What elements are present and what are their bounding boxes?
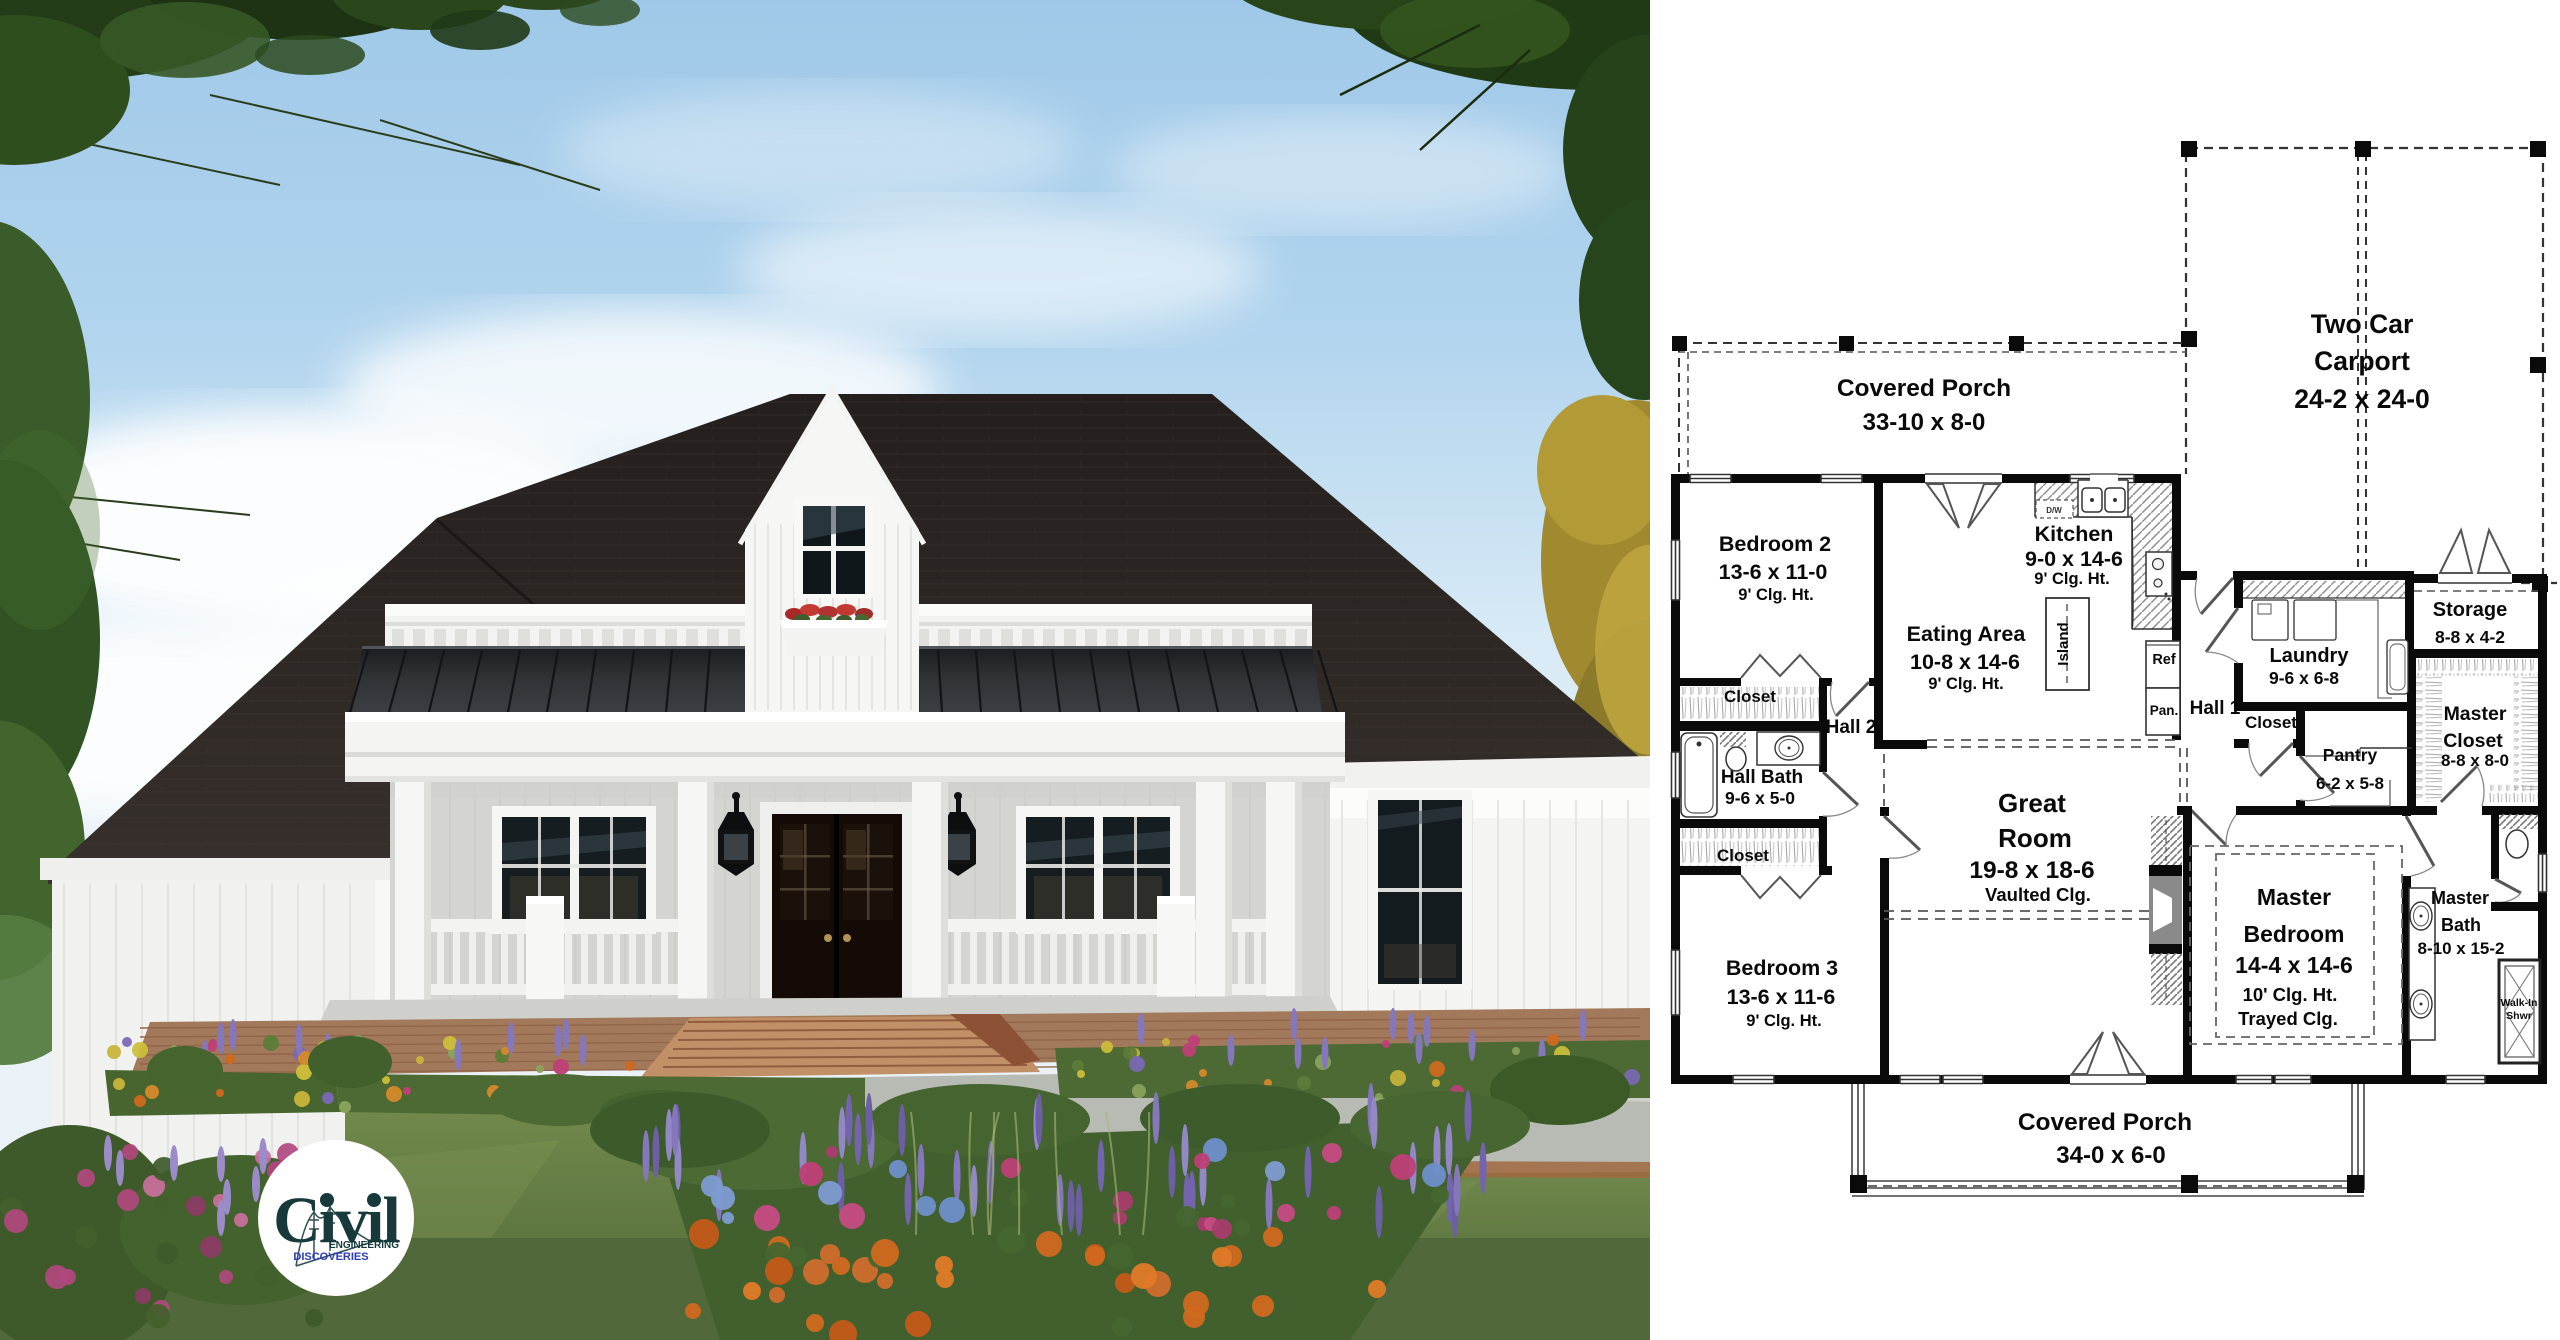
svg-text:Storage: Storage <box>2433 599 2507 621</box>
svg-text:9' Clg. Ht.: 9' Clg. Ht. <box>2034 570 2109 588</box>
svg-text:Island: Island <box>2055 622 2072 665</box>
svg-text:Master: Master <box>2257 884 2331 910</box>
svg-text:Shwr: Shwr <box>2506 1010 2532 1022</box>
svg-text:Walk-In: Walk-In <box>2501 997 2538 1009</box>
svg-text:Carport: Carport <box>2314 346 2410 376</box>
svg-text:6-2 x 5-8: 6-2 x 5-8 <box>2316 774 2384 793</box>
svg-text:24-2 x 24-0: 24-2 x 24-0 <box>2294 384 2430 414</box>
svg-text:D/W: D/W <box>2046 506 2062 515</box>
svg-text:33-10 x 8-0: 33-10 x 8-0 <box>1863 409 1986 436</box>
svg-text:9-6 x 5-0: 9-6 x 5-0 <box>1725 788 1795 808</box>
svg-text:8-8 x 8-0: 8-8 x 8-0 <box>2441 751 2509 770</box>
svg-text:Master: Master <box>2431 888 2489 908</box>
svg-text:Bedroom 2: Bedroom 2 <box>1719 532 1831 556</box>
svg-text:Laundry: Laundry <box>2270 645 2350 667</box>
svg-text:ENGINEERING: ENGINEERING <box>329 1240 399 1251</box>
svg-text:9' Clg. Ht.: 9' Clg. Ht. <box>1738 586 1813 604</box>
svg-text:Hall 2: Hall 2 <box>1826 717 1877 738</box>
svg-text:Two Car: Two Car <box>2311 309 2414 339</box>
svg-text:Covered Porch: Covered Porch <box>2018 1109 2192 1136</box>
svg-text:9' Clg. Ht.: 9' Clg. Ht. <box>1928 675 2003 693</box>
svg-text:Hall 1: Hall 1 <box>2190 698 2241 719</box>
svg-text:14-4 x 14-6: 14-4 x 14-6 <box>2235 952 2353 978</box>
svg-text:Vaulted Clg.: Vaulted Clg. <box>1985 884 2091 905</box>
svg-text:Pantry: Pantry <box>2323 745 2378 765</box>
svg-text:Pan.: Pan. <box>2150 703 2179 718</box>
svg-text:10' Clg. Ht.: 10' Clg. Ht. <box>2243 984 2338 1005</box>
svg-text:Kitchen: Kitchen <box>2035 522 2114 546</box>
svg-text:Room: Room <box>1998 823 2072 853</box>
svg-text:13-6 x 11-0: 13-6 x 11-0 <box>1719 560 1828 584</box>
svg-text:Trayed Clg.: Trayed Clg. <box>2238 1008 2338 1029</box>
svg-text:19-8 x 18-6: 19-8 x 18-6 <box>1969 857 2094 884</box>
svg-text:DISCOVERIES: DISCOVERIES <box>293 1251 368 1263</box>
svg-text:9-6 x 6-8: 9-6 x 6-8 <box>2269 668 2339 688</box>
svg-text:13-6 x 11-6: 13-6 x 11-6 <box>1727 985 1836 1009</box>
svg-text:Closet: Closet <box>1717 846 1769 865</box>
svg-text:34-0 x 6-0: 34-0 x 6-0 <box>2056 1142 2165 1169</box>
svg-text:9-0 x 14-6: 9-0 x 14-6 <box>2025 547 2123 571</box>
svg-text:Closet: Closet <box>1724 687 1776 706</box>
svg-text:10-8 x 14-6: 10-8 x 14-6 <box>1910 650 2020 674</box>
svg-text:Bedroom: Bedroom <box>2244 921 2345 947</box>
svg-text:Bath: Bath <box>2441 915 2481 935</box>
svg-text:9' Clg. Ht.: 9' Clg. Ht. <box>1746 1012 1821 1030</box>
svg-text:Covered Porch: Covered Porch <box>1837 375 2011 402</box>
svg-text:Eating Area: Eating Area <box>1907 622 2027 646</box>
svg-text:Ref: Ref <box>2152 652 2176 668</box>
svg-text:Bedroom 3: Bedroom 3 <box>1726 956 1838 980</box>
svg-text:8-10 x 15-2: 8-10 x 15-2 <box>2418 939 2505 958</box>
svg-text:Great: Great <box>1998 788 2066 818</box>
svg-text:Closet: Closet <box>2443 730 2503 752</box>
svg-text:Closet: Closet <box>2245 713 2297 732</box>
svg-text:Master: Master <box>2444 703 2507 725</box>
svg-text:8-8 x 4-2: 8-8 x 4-2 <box>2435 627 2505 647</box>
